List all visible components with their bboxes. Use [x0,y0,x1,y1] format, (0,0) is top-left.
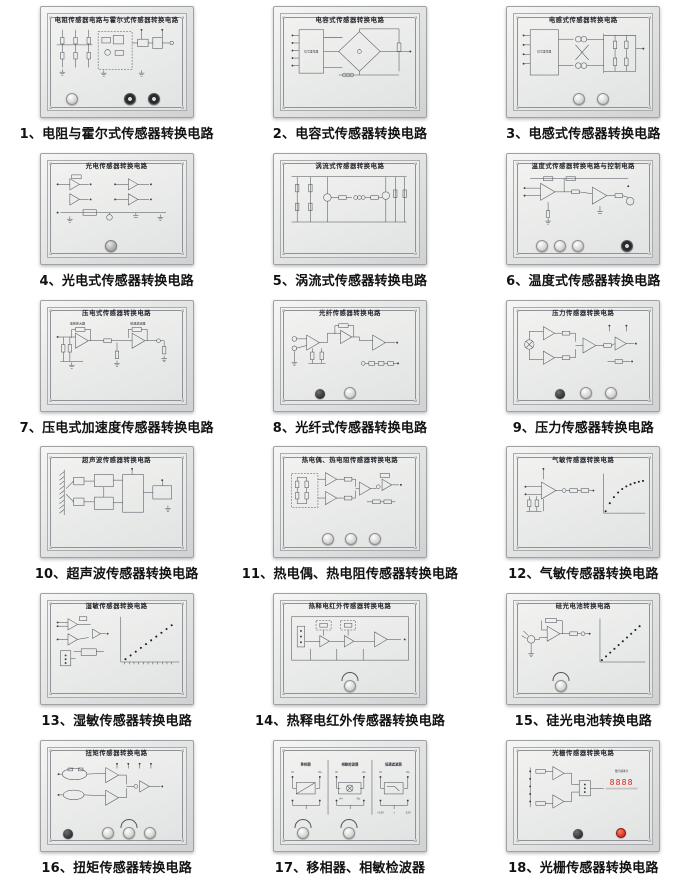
panel-caption: 1、电阻与霍尔式传感器转换电路 [20,123,214,142]
svg-text:Vi: Vi [379,770,382,774]
white-knob [66,93,78,105]
svg-text:相敏检波器: 相敏检波器 [342,761,360,766]
catalog-item-16: 扭矩传感器转换电路16、扭矩传感器转换电路 [0,733,233,880]
panel-title: 压电式传感器转换电路 [48,311,186,317]
white-knob [144,827,156,839]
circuit-sketch: 电荷放大器低通滤波器 [51,320,183,402]
circuit-sketch [517,613,649,695]
panel-title: 扭矩传感器转换电路 [48,751,186,757]
panel-title: 光栅传感器转换电路 [514,751,652,757]
circuit-sketch [517,466,649,548]
panel-caption: 17、移相器、相敏检波器 [275,857,426,876]
catalog-item-6: 温度式传感器转换电路与控制电路6、温度式传感器转换电路 [467,147,700,294]
white-knob [123,827,135,839]
panel-caption: 8、光纤式传感器转换电路 [273,417,427,436]
panel-grid: 电阻传感器电路与霍尔式传感器转换电路1、电阻与霍尔式传感器转换电路电容式传感器转… [0,0,700,880]
panel-board-16[interactable]: 扭矩传感器转换电路 [40,740,194,852]
white-knob [345,533,357,545]
panel-caption: 2、电容式传感器转换电路 [273,123,427,142]
panel-title: 湿敏传感器转换电路 [48,604,186,610]
black-knob [315,389,325,399]
panel-board-17[interactable]: 移相器相敏检波器低通滤波器ViVoViVoA+-DvViVo+12V⏚-12V [273,740,427,852]
catalog-item-8: 光纤传感器转换电路8、光纤式传感器转换电路 [233,293,466,440]
panel-face: 光栅传感器转换电路8888数字频率计 [513,747,653,845]
svg-text:-Dv: -Dv [356,797,361,800]
panel-face: 温度式传感器转换电路与控制电路 [513,160,653,258]
panel-face: 涡流式传感器转换电路 [280,160,420,258]
catalog-item-13: 湿敏传感器转换电路13、湿敏传感器转换电路 [0,587,233,734]
white-knob [102,827,114,839]
panel-caption: 13、湿敏传感器转换电路 [41,710,192,729]
panel-face: 超声波传感器转换电路 [47,453,187,551]
panel-face: 压电式传感器转换电路电荷放大器低通滤波器 [47,307,187,405]
white-knob [555,680,567,692]
svg-text:电荷放大器: 电荷放大器 [69,320,85,325]
panel-title: 电感式传感器转换电路 [514,18,652,24]
catalog-item-9: 压力传感器转换电路9、压力传感器转换电路 [467,293,700,440]
white-knob [344,680,356,692]
panel-board-2[interactable]: 电容式传感器转换电路信号发生器 [273,6,427,118]
white-knob [572,240,584,252]
panel-board-4[interactable]: 光电传感器转换电路 [40,153,194,265]
rotary-knob [621,240,633,252]
panel-board-3[interactable]: 电感式传感器转换电路信号发生器 [506,6,660,118]
screw-icon [414,749,417,752]
panel-caption: 7、压电式加速度传感器转换电路 [20,417,214,436]
catalog-item-15: 硅光电池转换电路15、硅光电池转换电路 [467,587,700,734]
svg-text:8888: 8888 [610,777,634,787]
panel-face: 光纤传感器转换电路 [280,307,420,405]
panel-board-10[interactable]: 超声波传感器转换电路 [40,446,194,558]
white-knob [573,93,585,105]
catalog-item-7: 压电式传感器转换电路电荷放大器低通滤波器7、压电式加速度传感器转换电路 [0,293,233,440]
panel-face: 热释电红外传感器转换电路 [280,600,420,698]
panel-face: 电阻传感器电路与霍尔式传感器转换电路 [47,13,187,111]
panel-board-13[interactable]: 湿敏传感器转换电路 [40,593,194,705]
panel-title: 电容式传感器转换电路 [281,18,419,24]
panel-title: 光电传感器转换电路 [48,164,186,170]
svg-text:⏚: ⏚ [393,810,395,814]
panel-face: 热电偶、热电阻传感器转换电路 [280,453,420,551]
catalog-item-2: 电容式传感器转换电路信号发生器2、电容式传感器转换电路 [233,0,466,147]
catalog-item-11: 热电偶、热电阻传感器转换电路11、热电偶、热电阻传感器转换电路 [233,440,466,587]
circuit-sketch [51,466,183,548]
svg-text:信号发生器: 信号发生器 [538,50,552,54]
panel-title: 光纤传感器转换电路 [281,311,419,317]
white-knob [536,240,548,252]
white-knob [344,387,356,399]
svg-text:Vi: Vi [291,770,294,774]
panel-caption: 14、热释电红外传感器转换电路 [255,710,445,729]
circuit-sketch [284,173,416,255]
catalog-item-12: 气敏传感器转换电路12、气敏传感器转换电路 [467,440,700,587]
panel-face: 电感式传感器转换电路信号发生器 [513,13,653,111]
panel-board-9[interactable]: 压力传感器转换电路 [506,300,660,412]
svg-text:Vi: Vi [335,770,338,774]
screw-icon [282,749,285,752]
svg-text:A+: A+ [339,797,343,800]
white-knob [605,387,617,399]
panel-board-1[interactable]: 电阻传感器电路与霍尔式传感器转换电路 [40,6,194,118]
panel-title: 热释电红外传感器转换电路 [281,604,419,610]
panel-board-11[interactable]: 热电偶、热电阻传感器转换电路 [273,446,427,558]
panel-face: 光电传感器转换电路 [47,160,187,258]
panel-caption: 11、热电偶、热电阻传感器转换电路 [242,563,459,582]
catalog-item-10: 超声波传感器转换电路10、超声波传感器转换电路 [0,440,233,587]
panel-title: 电阻传感器电路与霍尔式传感器转换电路 [48,18,186,24]
circuit-sketch: 信号发生器 [284,26,416,108]
panel-title: 温度式传感器转换电路与控制电路 [514,164,652,170]
panel-caption: 16、扭矩传感器转换电路 [41,857,192,876]
svg-text:Vo: Vo [406,770,410,774]
panel-caption: 18、光栅传感器转换电路 [508,857,659,876]
rotary-knob [124,93,136,105]
svg-text:信号发生器: 信号发生器 [304,50,318,54]
svg-text:低通滤波器: 低通滤波器 [130,320,146,325]
panel-face: 气敏传感器转换电路 [513,453,653,551]
panel-board-14[interactable]: 热释电红外传感器转换电路 [273,593,427,705]
panel-face: 移相器相敏检波器低通滤波器ViVoViVoA+-DvViVo+12V⏚-12V [280,747,420,845]
catalog-item-1: 电阻传感器电路与霍尔式传感器转换电路1、电阻与霍尔式传感器转换电路 [0,0,233,147]
white-knob [297,827,309,839]
black-knob [555,389,565,399]
panel-face: 电容式传感器转换电路信号发生器 [280,13,420,111]
white-knob [554,240,566,252]
catalog-item-5: 涡流式传感器转换电路5、涡流式传感器转换电路 [233,147,466,294]
catalog-item-14: 热释电红外传感器转换电路14、热释电红外传感器转换电路 [233,587,466,734]
white-knob [369,533,381,545]
panel-face: 湿敏传感器转换电路 [47,600,187,698]
panel-board-8[interactable]: 光纤传感器转换电路 [273,300,427,412]
panel-board-7[interactable]: 压电式传感器转换电路电荷放大器低通滤波器 [40,300,194,412]
svg-text:低通滤波器: 低通滤波器 [384,761,403,766]
panel-caption: 4、光电式传感器转换电路 [39,270,193,289]
panel-face: 扭矩传感器转换电路 [47,747,187,845]
panel-face: 压力传感器转换电路 [513,307,653,405]
panel-board-5[interactable]: 涡流式传感器转换电路 [273,153,427,265]
rotary-knob [148,93,160,105]
circuit-sketch [51,613,183,695]
circuit-sketch: 8888数字频率计 [517,760,649,842]
catalog-item-18: 光栅传感器转换电路8888数字频率计18、光栅传感器转换电路 [467,733,700,880]
white-knob [597,93,609,105]
panel-title: 超声波传感器转换电路 [48,458,186,464]
svg-text:数字频率计: 数字频率计 [615,768,629,772]
red-button [616,828,626,838]
catalog-item-17: 移相器相敏检波器低通滤波器ViVoViVoA+-DvViVo+12V⏚-12V1… [233,733,466,880]
panel-caption: 3、电感式传感器转换电路 [506,123,660,142]
panel-caption: 5、涡流式传感器转换电路 [273,270,427,289]
svg-text:-12V: -12V [405,811,411,814]
panel-title: 气敏传感器转换电路 [514,458,652,464]
catalog-item-3: 电感式传感器转换电路信号发生器3、电感式传感器转换电路 [467,0,700,147]
white-knob [343,827,355,839]
panel-title: 涡流式传感器转换电路 [281,164,419,170]
panel-title: 热电偶、热电阻传感器转换电路 [281,458,419,464]
black-knob [573,829,583,839]
black-knob [63,829,73,839]
panel-face: 硅光电池转换电路 [513,600,653,698]
panel-caption: 15、硅光电池转换电路 [515,710,652,729]
panel-caption: 9、压力传感器转换电路 [513,417,654,436]
white-knob [580,387,592,399]
svg-text:Vo: Vo [362,770,366,774]
svg-text:移相器: 移相器 [301,761,312,766]
panel-caption: 6、温度式传感器转换电路 [506,270,660,289]
panel-board-15[interactable]: 硅光电池转换电路 [506,593,660,705]
catalog-item-4: 光电传感器转换电路4、光电式传感器转换电路 [0,147,233,294]
svg-text:+12V: +12V [377,811,384,814]
panel-caption: 12、气敏传感器转换电路 [508,563,659,582]
svg-text:Vo: Vo [318,770,322,774]
panel-board-12[interactable]: 气敏传感器转换电路 [506,446,660,558]
gray-knob [105,240,117,252]
panel-board-18[interactable]: 光栅传感器转换电路8888数字频率计 [506,740,660,852]
panel-board-6[interactable]: 温度式传感器转换电路与控制电路 [506,153,660,265]
panel-caption: 10、超声波传感器转换电路 [35,563,199,582]
white-knob [322,533,334,545]
panel-title: 硅光电池转换电路 [514,604,652,610]
panel-title: 压力传感器转换电路 [514,311,652,317]
